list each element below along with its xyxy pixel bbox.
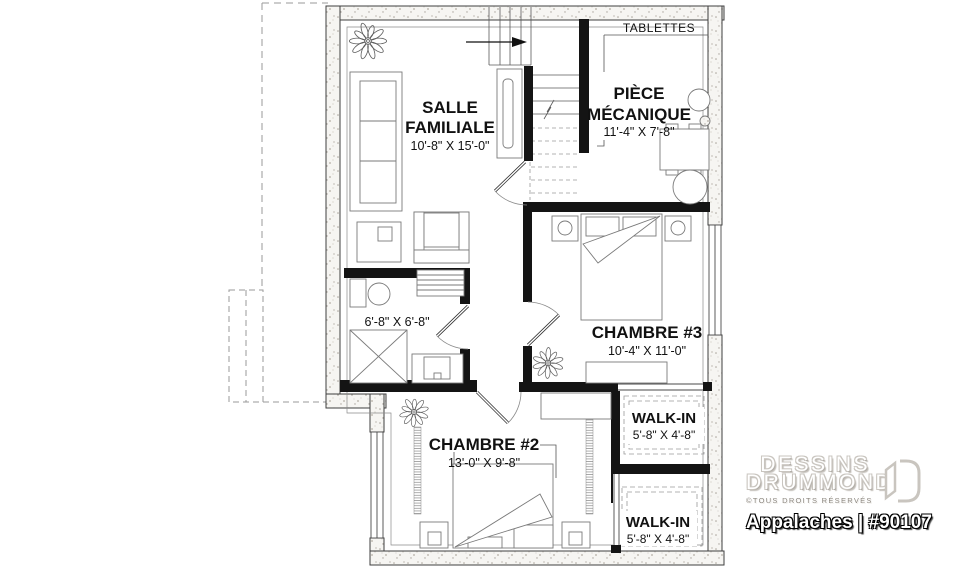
- wall-stair-mech: [579, 19, 589, 153]
- wall-right-a: [708, 6, 722, 225]
- plant-icon: [396, 394, 432, 430]
- floor-plan-page: SALLE FAMILIALE 10'-8" X 15'-0" PIÈCE MÉ…: [0, 0, 960, 569]
- linen-shelves: [417, 270, 464, 296]
- brand-block: DESSINS DRUMMOND ©TOUS DROITS RÉSERVÉS A…: [746, 456, 922, 534]
- nightstand: [420, 522, 448, 548]
- label-tablettes: TABLETTES: [623, 21, 695, 35]
- door-bathroom: [437, 306, 468, 349]
- wall-chambre3-bottom: [519, 382, 618, 392]
- wall-top: [326, 6, 724, 20]
- wall-walkin-divider-h: [611, 464, 710, 474]
- wall-bottom: [370, 551, 724, 565]
- door-chambre3: [528, 302, 559, 345]
- label-salle-familiale-1: SALLE: [422, 98, 478, 117]
- nightstand: [665, 216, 691, 241]
- label-walkin1: WALK-IN: [632, 410, 696, 427]
- vanity-sink: [412, 354, 463, 383]
- wall-mech-bottom: [527, 202, 710, 212]
- water-heater: [688, 89, 710, 111]
- pump: [700, 116, 710, 126]
- stairs-under-dashed: [530, 120, 579, 200]
- tv-unit: [497, 69, 522, 158]
- wall-tv-halfwall: [524, 66, 533, 161]
- door-stairs: [495, 162, 527, 205]
- wall-chambre3-left-b: [523, 346, 532, 384]
- wall-left-upper: [326, 6, 340, 408]
- chambre2-furniture: [420, 393, 611, 548]
- dims-salle-familiale: 10'-8" X 15'-0": [411, 139, 490, 153]
- dims-walkin1: 5'-8" X 4'-8": [633, 428, 695, 442]
- wall-post-a: [703, 382, 712, 391]
- water-tank: [673, 170, 707, 204]
- shower: [350, 330, 407, 383]
- wall-post-b: [611, 545, 621, 553]
- label-walkin2: WALK-IN: [626, 514, 690, 531]
- dims-chambre3: 10'-4" X 11'-0": [608, 344, 686, 358]
- bed-chambre3: [581, 214, 662, 320]
- label-piece-mecanique-1: PIÈCE: [613, 84, 664, 103]
- window-left: [371, 432, 383, 538]
- door-icon: [876, 458, 922, 504]
- plant-icon: [528, 343, 568, 383]
- plant-icon: [349, 22, 386, 59]
- sofa: [350, 72, 402, 211]
- nightstand: [552, 216, 578, 241]
- window-right: [709, 225, 721, 335]
- stair-direction-arrow: [466, 37, 527, 47]
- side-table: [357, 222, 401, 262]
- dresser-chambre3: [586, 362, 667, 383]
- dims-salle-de-bain: 6'-8" X 6'-8": [364, 315, 429, 329]
- label-chambre2: CHAMBRE #2: [429, 435, 540, 454]
- wall-right-b: [708, 335, 722, 565]
- label-salle-familiale-2: FAMILIALE: [405, 118, 495, 137]
- nightstand: [562, 522, 590, 548]
- dresser-chambre2: [541, 393, 611, 419]
- bed-chambre2: [453, 464, 553, 548]
- stair-break-symbol: [544, 100, 554, 119]
- door-chambre2: [477, 392, 521, 423]
- plan-title: Appalaches | #90107: [746, 512, 922, 534]
- label-piece-mecanique-2: MÉCANIQUE: [587, 105, 691, 124]
- dims-piece-mecanique: 11'-4" X 7'-8": [603, 125, 674, 139]
- dims-chambre2: 13'-0" X 9'-8": [448, 456, 520, 470]
- dims-walkin2: 5'-8" X 4'-8": [627, 532, 689, 546]
- label-chambre3: CHAMBRE #3: [592, 323, 703, 342]
- toilet: [350, 279, 390, 307]
- wall-chambre3-left-a: [523, 202, 532, 302]
- armchair: [414, 212, 469, 263]
